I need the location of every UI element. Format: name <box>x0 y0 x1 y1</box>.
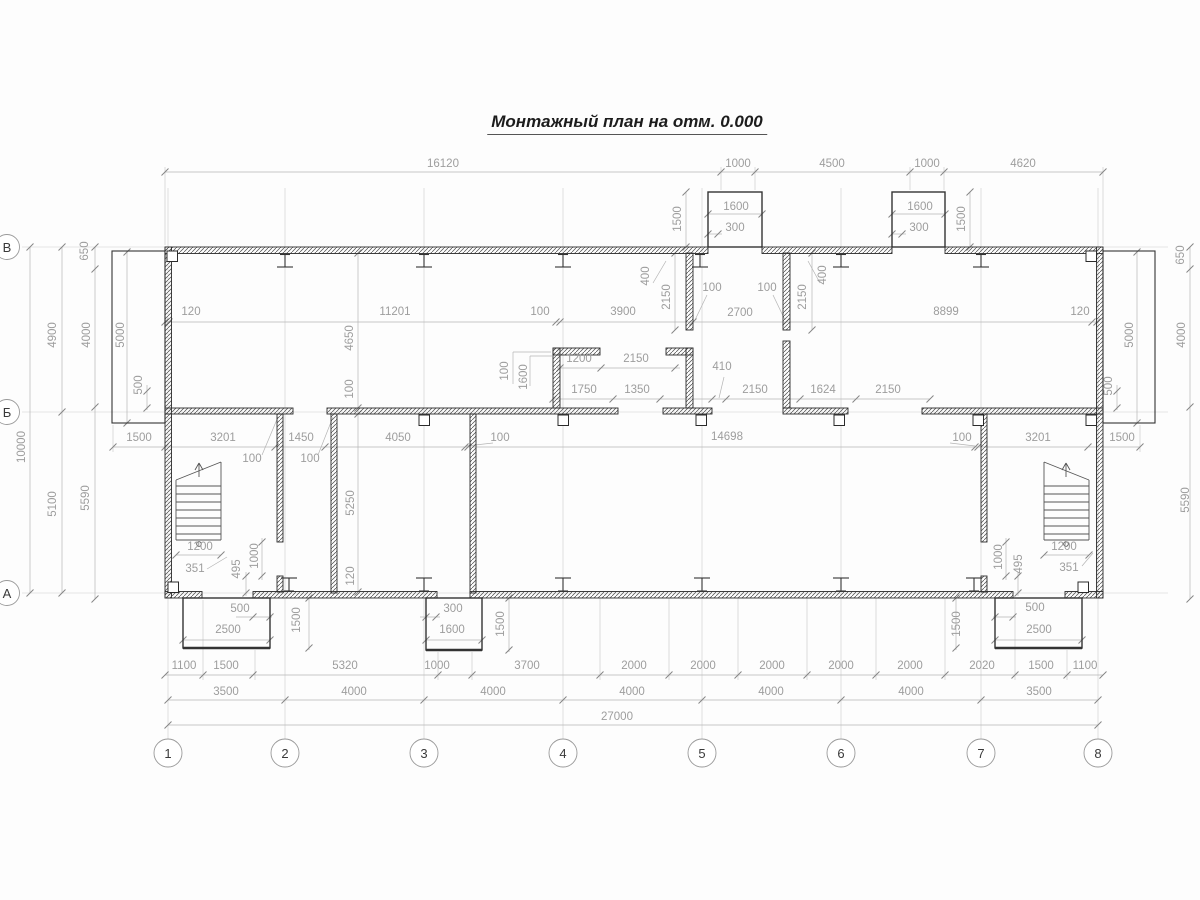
dim-label: 16120 <box>427 158 459 170</box>
dim-label: 650 <box>79 241 91 260</box>
dim-label: 120 <box>181 306 200 318</box>
dim-label: 4650 <box>344 325 356 351</box>
dim-label: 2000 <box>621 660 647 672</box>
dim-label: 495 <box>1013 554 1025 573</box>
dim-label: 1200 <box>187 541 213 553</box>
dim-label: 1624 <box>810 384 836 396</box>
dim-label: 1500 <box>951 611 963 637</box>
dim-label: 1500 <box>672 206 684 232</box>
dim-label: 300 <box>443 603 462 615</box>
dim-label: 100 <box>490 432 509 444</box>
dim-label: 1750 <box>571 384 597 396</box>
dim-label: 4000 <box>1176 322 1188 348</box>
dim-label: 8899 <box>933 306 959 318</box>
dim-label: 351 <box>185 563 204 575</box>
dim-label: 11201 <box>379 306 410 318</box>
stairs-icon-left <box>176 462 221 546</box>
dim-label: 10000 <box>16 431 28 463</box>
dim-label: 400 <box>817 265 829 284</box>
dim-label: 2150 <box>623 353 649 365</box>
dim-label: 2000 <box>897 660 923 672</box>
dim-label: 5590 <box>80 485 92 511</box>
dim-label: 100 <box>530 306 549 318</box>
dim-label: 1350 <box>624 384 650 396</box>
dim-label: 2150 <box>661 284 673 310</box>
column-axis-bubble: 3 <box>410 739 438 767</box>
dim-label: 100 <box>757 282 776 294</box>
column-axis-bubble: 6 <box>827 739 855 767</box>
dim-label: 1500 <box>1109 432 1135 444</box>
dimension-labels: 16120 1000 4500 1000 4620 1600 300 1500 … <box>16 158 1192 723</box>
dim-label: 2150 <box>742 384 768 396</box>
column-axis-label: 8 <box>1094 746 1101 761</box>
dim-label: 1450 <box>288 432 314 444</box>
dim-label: 1100 <box>172 660 197 672</box>
dim-label: 2700 <box>727 307 753 319</box>
column-axis-bubble: 5 <box>688 739 716 767</box>
dim-label: 1600 <box>907 201 933 213</box>
dim-label: 4000 <box>758 686 784 698</box>
dim-label: 5590 <box>1180 487 1192 513</box>
dim-label: 5250 <box>345 490 357 516</box>
dim-label: 1000 <box>914 158 940 170</box>
dim-label: 120 <box>345 566 357 585</box>
dim-label: 1500 <box>213 660 239 672</box>
dim-label: 2150 <box>875 384 901 396</box>
leader-lines <box>207 261 1093 569</box>
dim-label: 3201 <box>1025 432 1051 444</box>
dim-label: 100 <box>499 361 511 380</box>
column-axis-bubble: 2 <box>271 739 299 767</box>
dim-label: 351 <box>1059 562 1078 574</box>
row-axis-bubble: А <box>0 581 20 606</box>
dim-label: 4000 <box>619 686 645 698</box>
dim-label: 3201 <box>210 432 236 444</box>
walls <box>165 247 1103 598</box>
dim-label: 650 <box>1175 245 1187 264</box>
dim-label: 3500 <box>1026 686 1052 698</box>
dim-label: 5000 <box>115 322 127 348</box>
dim-label: 4000 <box>898 686 924 698</box>
dim-label: 1100 <box>1073 660 1098 672</box>
dim-label: 1500 <box>956 206 968 232</box>
dim-label: 300 <box>725 222 744 234</box>
column-axis-label: 1 <box>164 746 171 761</box>
column-axis-label: 3 <box>420 746 427 761</box>
column-axis-bubble: 7 <box>967 739 995 767</box>
dim-label: 1600 <box>518 364 530 390</box>
dim-label: 3700 <box>514 660 540 672</box>
dim-label: 1600 <box>439 624 465 636</box>
column-axis-label: 7 <box>977 746 984 761</box>
dim-label: 1600 <box>723 201 749 213</box>
column-axis-label: 6 <box>837 746 844 761</box>
drawing-page: Монтажный план на отм. 0.000 <box>0 0 1200 900</box>
dim-label: 500 <box>1025 602 1044 614</box>
dim-label: 4000 <box>341 686 367 698</box>
dim-label: 27000 <box>601 711 633 723</box>
dim-label: 100 <box>952 432 971 444</box>
dim-label: 500 <box>230 603 249 615</box>
column-axis-label: 4 <box>559 746 566 761</box>
dim-label: 3500 <box>213 686 239 698</box>
dim-label: 5320 <box>332 660 358 672</box>
row-axis-label: А <box>3 586 12 601</box>
dim-label: 4900 <box>47 322 59 348</box>
row-axis-label: Б <box>3 405 12 420</box>
dim-label: 1000 <box>993 544 1005 570</box>
dim-label: 2000 <box>759 660 785 672</box>
column-beam-icons <box>277 255 989 592</box>
dim-label: 14698 <box>711 431 743 443</box>
dim-label: 1500 <box>1028 660 1054 672</box>
dim-label: 495 <box>231 559 243 578</box>
dim-label: 100 <box>702 282 721 294</box>
column-axis-bubble: 4 <box>549 739 577 767</box>
dim-label: 300 <box>909 222 928 234</box>
dim-label: 2000 <box>828 660 854 672</box>
dim-label: 100 <box>344 379 356 398</box>
dim-label: 1500 <box>291 607 303 633</box>
floor-plan-drawing: 16120 1000 4500 1000 4620 1600 300 1500 … <box>0 0 1200 900</box>
row-axis-bubble: В <box>0 235 20 260</box>
dim-label: 4050 <box>385 432 411 444</box>
dimension-lines <box>30 172 1190 725</box>
dim-label: 1200 <box>1051 541 1077 553</box>
dim-label: 1000 <box>249 543 261 569</box>
dim-label: 2150 <box>797 284 809 310</box>
dim-label: 410 <box>712 361 731 373</box>
dim-label: 3900 <box>610 306 636 318</box>
porch-left <box>183 598 270 648</box>
axis-lines <box>22 188 1168 739</box>
dim-label: 2000 <box>690 660 716 672</box>
dim-label: 100 <box>300 453 319 465</box>
dim-label: 4000 <box>480 686 506 698</box>
row-axis-label: В <box>3 240 12 255</box>
partition-stair-left <box>277 414 283 542</box>
column-axis-bubble: 1 <box>154 739 182 767</box>
dim-label: 4620 <box>1010 158 1036 170</box>
dim-label: 4000 <box>81 322 93 348</box>
dim-label: 120 <box>1070 306 1089 318</box>
dim-label: 4500 <box>819 158 845 170</box>
column-squares <box>167 251 1097 593</box>
dim-label: 500 <box>1103 376 1115 395</box>
dim-label: 2020 <box>969 660 995 672</box>
dim-label: 1500 <box>495 611 507 637</box>
balconies-and-porches <box>112 192 1155 650</box>
dim-label: 2500 <box>1026 624 1052 636</box>
stairs-icon-right <box>1044 462 1089 546</box>
row-axis-bubble: Б <box>0 400 20 425</box>
dim-label: 1000 <box>725 158 751 170</box>
dim-label: 100 <box>242 453 261 465</box>
column-axis-label: 5 <box>698 746 705 761</box>
dim-label: 5100 <box>47 491 59 517</box>
dim-label: 5000 <box>1124 322 1136 348</box>
dim-label: 1000 <box>424 660 450 672</box>
dim-label: 400 <box>640 266 652 285</box>
partition-stair-right <box>981 414 987 542</box>
column-axis-label: 2 <box>281 746 288 761</box>
column-axis-bubble: 8 <box>1084 739 1112 767</box>
dim-label: 1200 <box>566 353 592 365</box>
dim-label: 500 <box>133 375 145 394</box>
dim-label: 2500 <box>215 624 241 636</box>
dim-label: 1500 <box>126 432 152 444</box>
